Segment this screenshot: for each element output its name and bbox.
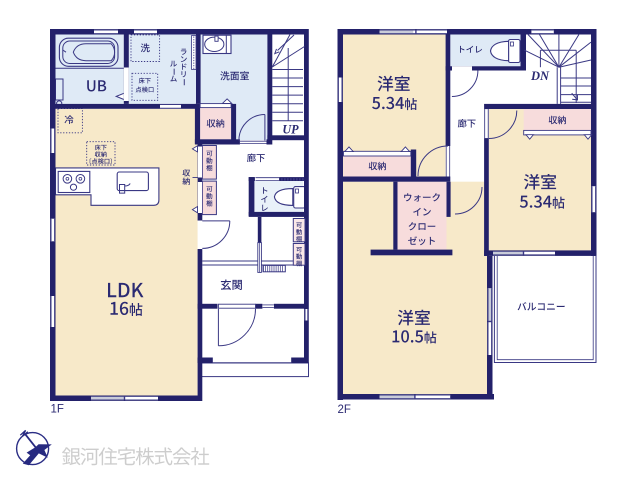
svg-text:DN: DN <box>530 69 550 83</box>
svg-text:UP: UP <box>282 122 299 136</box>
svg-text:2F: 2F <box>338 404 351 416</box>
svg-text:1F: 1F <box>51 404 64 416</box>
